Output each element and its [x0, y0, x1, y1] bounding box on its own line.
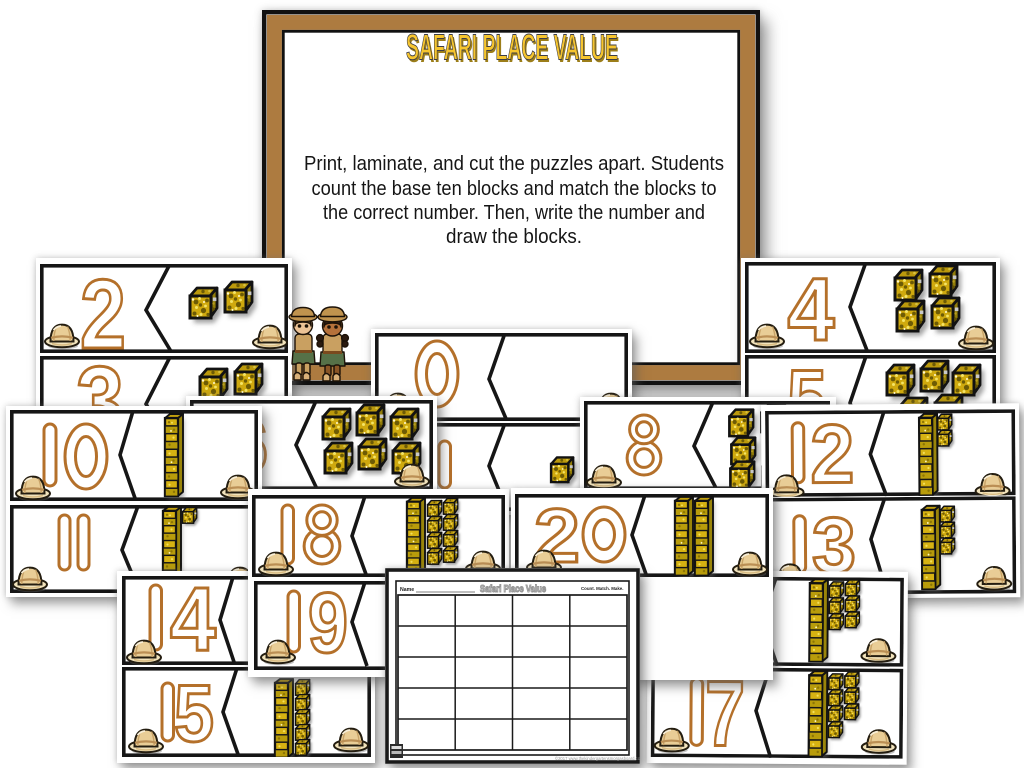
svg-text:©2017 www.thekindergartensmorg: ©2017 www.thekindergartensmorgasboard.co…: [555, 756, 640, 761]
svg-text:Safari Place Value: Safari Place Value: [480, 584, 546, 595]
svg-text:Print, laminate, and cut the p: Print, laminate, and cut the puzzles apa…: [304, 152, 724, 175]
svg-text:9: 9: [308, 581, 348, 670]
svg-text:2: 2: [810, 409, 855, 497]
svg-text:7: 7: [705, 667, 746, 759]
svg-text:the correct number. Then, writ: the correct number. Then, write the numb…: [323, 201, 705, 224]
svg-text:draw the blocks.: draw the blocks.: [446, 225, 582, 248]
svg-text:5: 5: [174, 669, 214, 757]
svg-text:count the base ten blocks and: count the base ten blocks and match the …: [312, 177, 717, 200]
svg-text:2: 2: [80, 264, 126, 353]
svg-text:4: 4: [788, 262, 835, 353]
svg-text:Name: Name: [400, 587, 414, 593]
svg-text:SAFARI PLACE VALUE: SAFARI PLACE VALUE: [406, 27, 618, 68]
svg-text:Count. Match. Make.: Count. Match. Make.: [581, 586, 623, 591]
svg-text:4: 4: [170, 576, 216, 665]
